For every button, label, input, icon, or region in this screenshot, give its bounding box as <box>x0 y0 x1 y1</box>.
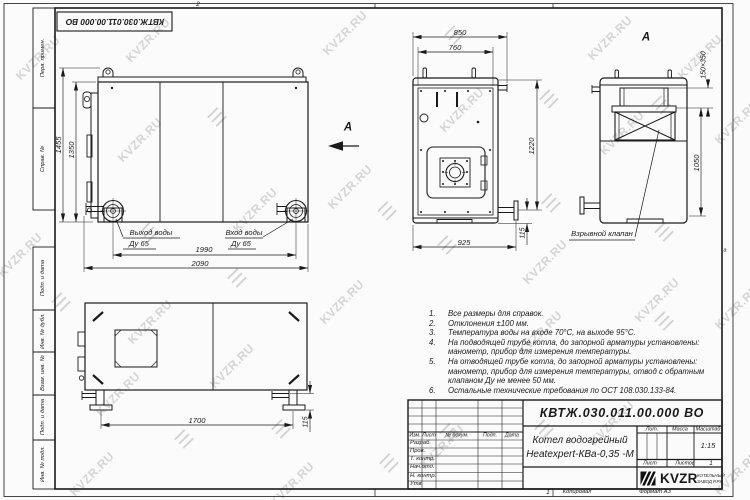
drawing-linework <box>0 0 750 500</box>
tb-lit-label: Лит. <box>646 427 658 432</box>
note-line: манометр, прибор для измерения температу… <box>448 347 727 357</box>
margin-cell-perv-primen: Перв. примен. <box>41 39 47 78</box>
tb-product-name-line2: Heatexpert-КВа-0,35 -М <box>526 450 634 460</box>
dim-1050: 1050 <box>693 155 701 172</box>
watermark-text: KVZR.RU <box>115 115 165 165</box>
top-stamp-doc-number: КВТЖ.030.011.00.000 ВО <box>65 17 163 25</box>
tb-col-podp: Подп. <box>483 433 497 438</box>
dim-925: 925 <box>458 239 471 247</box>
tb-col-data: Дата <box>505 433 519 438</box>
watermark-text: KVZR.RU <box>317 277 367 327</box>
margin-cell-podp-data-2: Подп. и дата <box>41 399 47 435</box>
tb-row-tkontr: Т. контр. <box>410 457 435 463</box>
view-direction-label-a: А <box>344 122 352 134</box>
note-line: Отклонения ±100 мм. <box>448 319 727 329</box>
kvzr-logo-subtext: КОТЕЛЬНЫЙ ЗАВОД Р.РУ <box>697 473 725 484</box>
tb-row-nachotd: Нач.отд. <box>410 465 434 471</box>
outlet-dn-label: Ду 65 <box>129 240 149 248</box>
margin-cell-podp-data-1: Подп. и дата <box>41 260 47 296</box>
watermark-logo-icon: ☰ <box>268 416 296 444</box>
tb-scale-value: 1:15 <box>701 442 716 450</box>
dim-115-rear: 115 <box>519 227 526 238</box>
watermark-text: KVZR.RU <box>437 85 487 135</box>
kvzr-logo-subtext-line2: ЗАВОД Р.РУ <box>697 479 725 485</box>
watermark-text: KVZR.RU <box>67 449 117 499</box>
note-number: 5. <box>429 357 436 367</box>
margin-cell-vzam-inv: Взам. инв. № <box>41 355 47 391</box>
dim-1455: 1455 <box>55 137 63 154</box>
note-line: На отводящей трубе котла, до запорной ар… <box>448 357 727 367</box>
margin-cell-sprav-no: Справ. № <box>41 146 47 172</box>
watermark-text: KVZR.RU <box>267 459 317 500</box>
watermark-text: KVZR.RU <box>597 108 647 158</box>
tb-col-docnum: № докум. <box>445 433 468 438</box>
tb-row-utv: Утв. <box>410 482 423 488</box>
note-number: 6. <box>429 386 436 396</box>
watermark-logo-icon: ☰ <box>204 104 232 132</box>
dim-150x350: 150×350 <box>700 51 707 78</box>
tb-row-nkontr: Н. контр. <box>410 474 436 480</box>
format-label: Формат А3 <box>639 490 671 496</box>
dim-850: 850 <box>454 29 467 37</box>
watermark-logo-icon: ☰ <box>224 265 252 293</box>
tb-col-izm: Изм. <box>409 433 420 438</box>
side-view <box>59 68 359 272</box>
watermark-logo-icon: ☰ <box>651 219 679 247</box>
watermark-text: KVZR.RU <box>0 230 45 280</box>
drawing-sheet: KVZR.RUKVZR.RUKVZR.RUKVZR.RUKVZR.RUKVZR.… <box>0 0 750 500</box>
note-item: 5. На отводящей трубе котла, до запорной… <box>427 357 727 386</box>
top-view <box>78 303 314 432</box>
dim-1700: 1700 <box>189 417 206 425</box>
watermark-text: KVZR.RU <box>13 33 63 83</box>
watermark-logo-icon: ☰ <box>171 426 199 454</box>
note-number: 4. <box>429 338 436 348</box>
note-item: 4. На подводящей трубе котла, до запорно… <box>427 338 727 357</box>
copied-label: Копировал <box>563 490 592 496</box>
note-item: 2. Отклонения ±100 мм. <box>427 319 727 329</box>
watermark-logo-icon: ☰ <box>374 198 402 226</box>
zone-number-top: 2 <box>196 1 200 7</box>
tb-sheets-value: 1 <box>709 460 713 466</box>
note-number: 1. <box>429 309 436 319</box>
note-number: 3. <box>429 328 436 338</box>
outlet-label: Выход воды <box>130 229 173 237</box>
watermark-text: KVZR.RU <box>585 13 635 63</box>
view-a-title: А <box>642 32 650 44</box>
dim-2090: 2090 <box>192 260 209 268</box>
watermark-text: KVZR.RU <box>93 369 143 419</box>
tb-doc-number: КВТЖ.030.011.00.000 ВО <box>540 407 704 420</box>
tb-row-prov: Пров. <box>410 449 425 455</box>
dim-760: 760 <box>449 44 462 52</box>
tb-scale-label: Масштаб <box>696 427 721 432</box>
watermark-text: KVZR.RU <box>207 341 257 391</box>
dim-1990: 1990 <box>196 246 213 254</box>
margin-cell-inv-dubl: Инв. № дубл. <box>41 313 47 349</box>
note-line: На подводящей трубе котла, до запорной а… <box>448 338 727 348</box>
inlet-dn-label: Ду 65 <box>231 240 251 248</box>
watermark-logo-icon: ☰ <box>376 450 404 478</box>
watermark-text: KVZR.RU <box>125 297 175 347</box>
watermark-text: KVZR.RU <box>520 237 570 287</box>
kvzr-logo-icon <box>640 471 656 486</box>
note-line: Все размеры для справок. <box>448 309 727 319</box>
note-item: 6. Остальные технические требования по О… <box>427 386 727 396</box>
watermark-logo-icon: ☰ <box>648 92 676 120</box>
watermark-logo-icon: ☰ <box>48 289 76 317</box>
note-line: манометр, прибор для измерения температу… <box>448 367 727 377</box>
dim-115-top: 115 <box>302 416 309 427</box>
watermark-text: KVZR.RU <box>325 162 375 212</box>
note-line: клапаном Ду не менее 50 мм. <box>448 376 727 386</box>
tb-col-list: Лист <box>422 433 436 438</box>
watermark-logo-icon: ☰ <box>538 190 566 218</box>
note-line: Остальные технические требования по ОСТ … <box>448 386 727 396</box>
note-line: Температура воды на входе 70°С, на выход… <box>448 328 727 338</box>
note-item: 3. Температура воды на входе 70°С, на вы… <box>427 328 727 338</box>
zone-letter-right: а <box>724 248 727 253</box>
watermark-logo-icon: ☰ <box>536 86 564 114</box>
tb-mass-label: Масса <box>672 427 688 432</box>
dim-1220: 1220 <box>528 138 536 155</box>
margin-cell-inv-podl: Инв. № подл. <box>41 446 47 482</box>
tb-sheets-label: Листов <box>675 461 694 466</box>
tb-product-name-line1: Котел водогрейный <box>532 436 627 446</box>
note-number: 2. <box>429 319 436 329</box>
tb-sheet-label: Лист <box>643 461 657 466</box>
watermark-text: KVZR.RU <box>712 97 750 147</box>
tb-row-razrab: Разраб. <box>410 441 431 447</box>
dim-1350: 1350 <box>68 142 76 159</box>
kvzr-logo-text: KVZR <box>660 471 698 487</box>
sheet-frame <box>4 4 733 497</box>
zone-number-bottom: 1 <box>546 490 550 496</box>
explosion-valve-label: Взрывной клапан <box>571 230 633 238</box>
technical-notes: 1. Все размеры для справок. 2. Отклонени… <box>427 309 727 395</box>
rear-view <box>413 32 542 251</box>
watermark-text: KVZR.RU <box>320 8 370 58</box>
note-item: 1. Все размеры для справок. <box>427 309 727 319</box>
kvzr-logo-subtext-line1: КОТЕЛЬНЫЙ <box>697 473 725 479</box>
inlet-label: Вход воды <box>226 229 263 237</box>
